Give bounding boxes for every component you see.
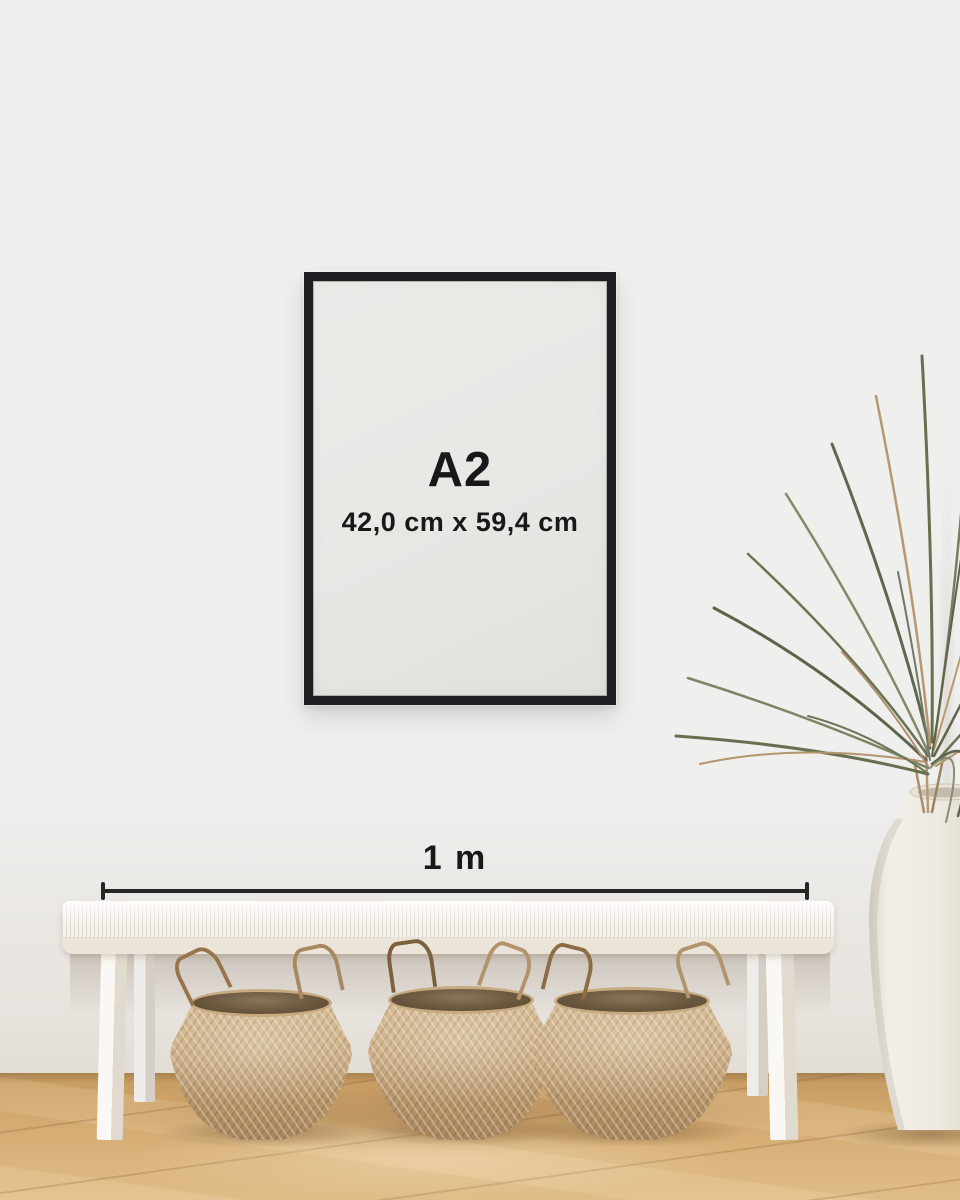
basket-body [532, 1001, 732, 1141]
basket-3 [532, 987, 732, 1141]
scale-tick-left [101, 882, 105, 900]
bench-leg-left-front [97, 948, 128, 1141]
room-scene: A2 42,0 cm x 59,4 cm 1 m [0, 0, 960, 1200]
poster-size-label: A2 [313, 446, 607, 495]
basket-1 [170, 989, 352, 1141]
bench-leg-right-back [747, 948, 768, 1096]
basket-2 [368, 986, 554, 1141]
scale-label: 1 m [355, 841, 555, 875]
scale-tick-right [805, 882, 809, 900]
basket-body [368, 1000, 554, 1141]
poster-frame: A2 42,0 cm x 59,4 cm [304, 272, 616, 705]
scale-line [103, 889, 807, 893]
basket-body [170, 1003, 352, 1141]
poster-dimensions-label: 42,0 cm x 59,4 cm [313, 509, 607, 536]
poster: A2 42,0 cm x 59,4 cm [313, 281, 607, 696]
bench-leg-left-back [134, 948, 155, 1102]
bench-leg-right-front [766, 948, 799, 1141]
bench-seat [62, 901, 834, 954]
